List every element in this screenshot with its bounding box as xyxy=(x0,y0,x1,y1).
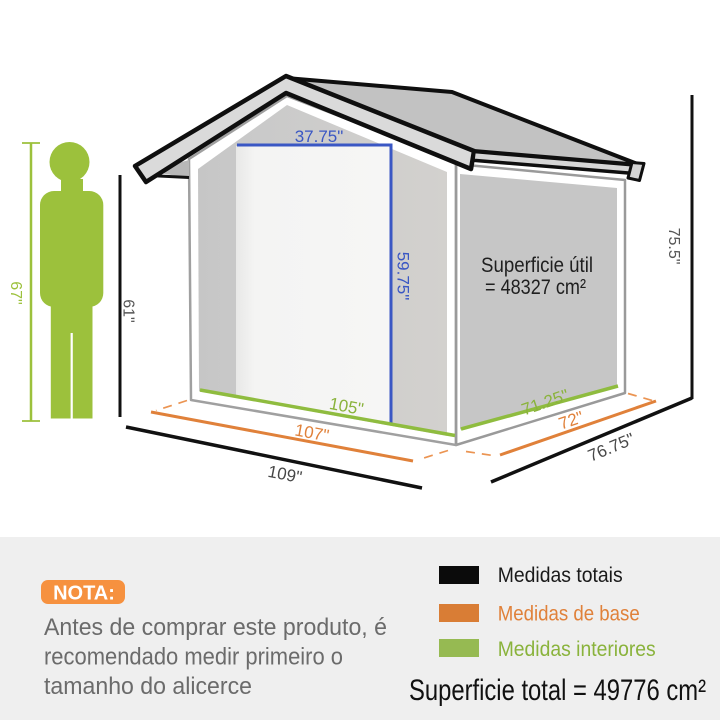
svg-text:37.75": 37.75" xyxy=(295,127,344,146)
svg-text:Medidas de base: Medidas de base xyxy=(498,602,640,626)
svg-text:Superficie útil: Superficie útil xyxy=(481,254,593,277)
svg-text:67": 67" xyxy=(7,281,24,304)
svg-text:Medidas interiores: Medidas interiores xyxy=(498,637,656,661)
svg-text:Superficie total = 49776 cm²: Superficie total = 49776 cm² xyxy=(409,674,706,707)
svg-text:61": 61" xyxy=(120,299,137,322)
svg-text:Antes de comprar este produto,: Antes de comprar este produto, é xyxy=(44,614,387,641)
svg-text:tamanho do alicerce: tamanho do alicerce xyxy=(44,673,252,700)
svg-text:59.75": 59.75" xyxy=(394,252,413,301)
svg-text:NOTA:: NOTA: xyxy=(53,583,115,605)
svg-text:recomendado medir primeiro o: recomendado medir primeiro o xyxy=(44,644,343,671)
svg-text:75.5": 75.5" xyxy=(665,228,682,265)
svg-text:= 48327 cm²: = 48327 cm² xyxy=(485,276,586,299)
svg-text:Medidas totais: Medidas totais xyxy=(498,563,623,587)
